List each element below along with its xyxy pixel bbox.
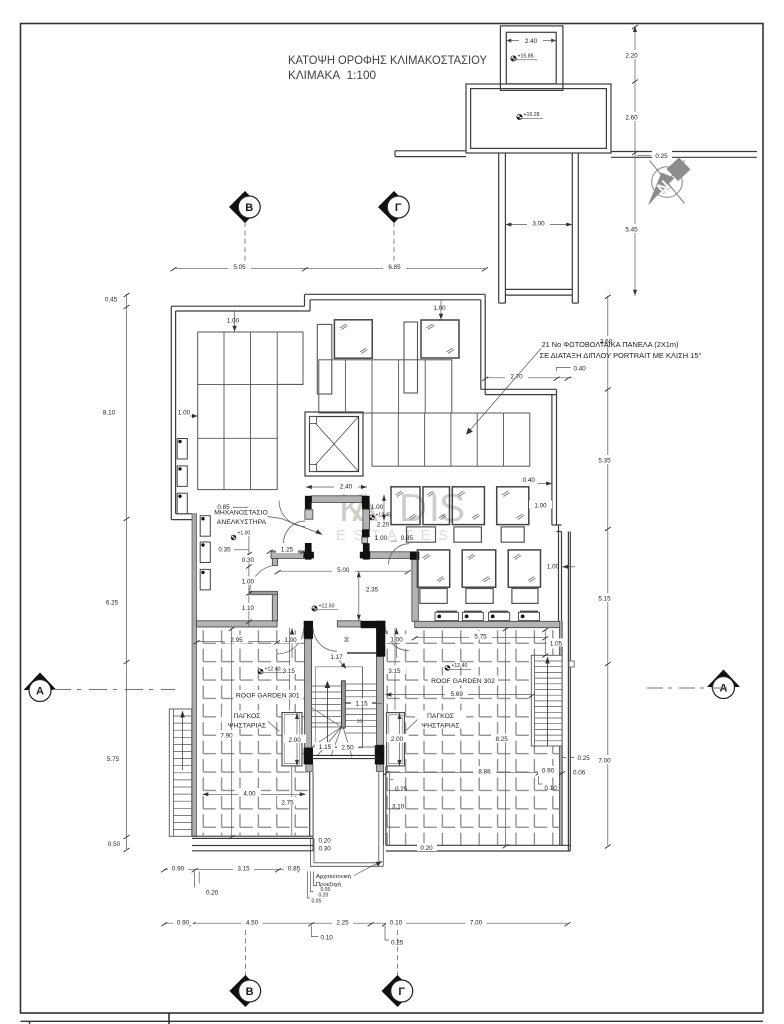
svg-text:0.10: 0.10 (545, 785, 558, 792)
svg-text:1.05: 1.05 (550, 640, 563, 647)
svg-text:1.15: 1.15 (319, 744, 332, 751)
svg-text:ROOF GARDEN 302: ROOF GARDEN 302 (431, 678, 495, 685)
svg-text:B: B (245, 202, 253, 214)
svg-text:0.90: 0.90 (177, 919, 190, 926)
svg-text:+15.85: +15.85 (518, 53, 534, 59)
svg-text:0.45: 0.45 (105, 297, 118, 304)
svg-text:7.90: 7.90 (220, 732, 233, 739)
svg-text:2.50: 2.50 (341, 745, 354, 752)
svg-text:1.00: 1.00 (242, 579, 255, 586)
svg-text:A: A (36, 686, 44, 698)
svg-text:ΨΗΣΤΑΡΙΑΣ: ΨΗΣΤΑΡΙΑΣ (228, 722, 266, 729)
svg-text:1.00: 1.00 (547, 564, 560, 571)
svg-text:Γ: Γ (398, 986, 405, 998)
svg-text:0.25: 0.25 (655, 153, 668, 160)
svg-text:5.15: 5.15 (598, 596, 611, 603)
svg-text:Αρχιτεκτονική: Αρχιτεκτονική (316, 873, 351, 880)
svg-text:0.20: 0.20 (206, 890, 219, 897)
svg-text:+12.45: +12.45 (376, 512, 392, 518)
svg-text:2.40: 2.40 (525, 38, 538, 45)
svg-text:0.25: 0.25 (395, 786, 408, 793)
svg-text:+1.00: +1.00 (238, 531, 251, 537)
svg-text:3.15: 3.15 (283, 668, 296, 675)
svg-text:2.25: 2.25 (336, 919, 349, 926)
svg-text:5.35: 5.35 (598, 458, 611, 465)
svg-text:2.20: 2.20 (625, 53, 638, 60)
svg-text:4.50: 4.50 (246, 919, 259, 926)
svg-text:0.90: 0.90 (542, 767, 555, 774)
svg-text:5.75: 5.75 (107, 756, 120, 763)
svg-text:0.40: 0.40 (574, 366, 587, 373)
svg-text:ΣΕ ΔΙΑΤΑΞΗ ΔΙΠΛΟΥ PORTRAIT ΜΕ: ΣΕ ΔΙΑΤΑΞΗ ΔΙΠΛΟΥ PORTRAIT ΜΕ ΚΛΙΣΗ 15° (540, 352, 702, 360)
svg-text:7.00: 7.00 (470, 919, 483, 926)
svg-text:1.15: 1.15 (355, 701, 368, 708)
svg-text:3.15: 3.15 (388, 668, 401, 675)
svg-text:0.05: 0.05 (312, 899, 322, 905)
svg-text:0.40: 0.40 (523, 477, 536, 484)
svg-text:+15.28: +15.28 (524, 112, 540, 118)
svg-text:0.90: 0.90 (172, 865, 185, 872)
svg-text:1.10: 1.10 (242, 605, 255, 612)
svg-text:5.75: 5.75 (474, 633, 487, 640)
svg-text:1.00: 1.00 (433, 305, 446, 312)
svg-text:5.00: 5.00 (337, 567, 350, 574)
svg-text:0.06: 0.06 (573, 769, 586, 776)
svg-text:ESTATES: ESTATES (336, 528, 456, 544)
svg-text:2.00: 2.00 (391, 736, 404, 743)
svg-text:1.00: 1.00 (375, 535, 388, 542)
svg-text:21 Νο ΦΩΤΟΒΟΛΤΑΪΚΑ ΠΑΝΕΛΑ (2Χ1: 21 Νο ΦΩΤΟΒΟΛΤΑΪΚΑ ΠΑΝΕΛΑ (2Χ1m) (542, 341, 679, 349)
svg-text:+12.40: +12.40 (451, 663, 467, 669)
svg-text:8.10: 8.10 (103, 410, 116, 417)
svg-text:0.20: 0.20 (420, 845, 433, 852)
svg-text:0.10: 0.10 (390, 919, 403, 926)
svg-text:3.15: 3.15 (237, 865, 250, 872)
svg-text:0.50: 0.50 (108, 841, 121, 848)
svg-text:1.00: 1.00 (178, 410, 191, 417)
svg-text:.90: .90 (345, 636, 351, 643)
svg-text:1.25: 1.25 (281, 546, 294, 553)
svg-text:ΠΑΓΚΟΣ: ΠΑΓΚΟΣ (234, 713, 261, 720)
svg-text:8.25: 8.25 (495, 736, 508, 743)
svg-text:+12.50: +12.50 (319, 603, 335, 609)
svg-text:2.60: 2.60 (625, 115, 638, 122)
svg-text:5.69: 5.69 (451, 691, 464, 698)
svg-text:2.35: 2.35 (366, 586, 379, 593)
svg-text:6.25: 6.25 (106, 600, 119, 607)
svg-text:1.17: 1.17 (330, 654, 343, 661)
svg-text:4.00: 4.00 (243, 790, 256, 797)
svg-text:ROOF GARDEN 301: ROOF GARDEN 301 (236, 693, 300, 700)
svg-text:0.25: 0.25 (391, 940, 404, 947)
svg-text:1.00: 1.00 (227, 318, 240, 325)
svg-text:ΨΗΣΤΑΡΙΑΣ: ΨΗΣΤΑΡΙΑΣ (421, 722, 459, 729)
svg-text:0.30: 0.30 (319, 846, 332, 853)
svg-text:5.45: 5.45 (625, 227, 638, 234)
svg-text:1.00: 1.00 (534, 502, 547, 509)
svg-text:ΚΛΙΜΑΚΑ 1:100: ΚΛΙΜΑΚΑ 1:100 (288, 68, 376, 82)
svg-text:5.05: 5.05 (233, 264, 246, 271)
svg-text:7.00: 7.00 (598, 758, 611, 765)
svg-text:6.85: 6.85 (388, 264, 401, 271)
svg-text:2.95: 2.95 (230, 637, 243, 644)
svg-text:8.88: 8.88 (478, 768, 491, 775)
svg-text:2.20: 2.20 (377, 522, 390, 529)
svg-text:Γ: Γ (395, 202, 402, 214)
svg-text:3.00: 3.00 (532, 220, 545, 227)
svg-text:20: 20 (357, 719, 363, 725)
svg-text:+12.40: +12.40 (265, 666, 281, 672)
svg-text:B: B (246, 986, 254, 998)
svg-text:0.35: 0.35 (218, 547, 231, 554)
svg-text:ΠΑΓΚΟΣ: ΠΑΓΚΟΣ (427, 713, 454, 720)
svg-text:0.25: 0.25 (578, 755, 591, 762)
svg-text:0.85: 0.85 (401, 535, 414, 542)
svg-text:ΚΑΤΟΨΗ ΟΡΟΦΗΣ ΚΛΙΜΑΚΟΣΤΑΣΙΟΥ: ΚΑΤΟΨΗ ΟΡΟΦΗΣ ΚΛΙΜΑΚΟΣΤΑΣΙΟΥ (288, 53, 487, 67)
svg-text:1.00: 1.00 (371, 504, 384, 511)
svg-text:0.30: 0.30 (242, 557, 255, 564)
svg-text:1.00: 1.00 (390, 637, 403, 644)
svg-text:2.00: 2.00 (288, 737, 301, 744)
svg-text:ΑΝΕΛΚΥΣΤΗΡΑ: ΑΝΕΛΚΥΣΤΗΡΑ (217, 519, 267, 526)
svg-text:ΜΗΧΑΝΟΣΤΑΣΙΟ: ΜΗΧΑΝΟΣΤΑΣΙΟ (214, 510, 268, 517)
svg-text:A: A (720, 683, 728, 695)
svg-text:0.85: 0.85 (288, 865, 301, 872)
svg-text:0.10: 0.10 (321, 935, 334, 942)
svg-text:3.10: 3.10 (392, 804, 405, 811)
svg-text:2.40: 2.40 (340, 483, 353, 490)
svg-text:2.75: 2.75 (281, 799, 294, 806)
svg-text:1.00: 1.00 (284, 637, 297, 644)
svg-text:0.20: 0.20 (319, 838, 332, 845)
